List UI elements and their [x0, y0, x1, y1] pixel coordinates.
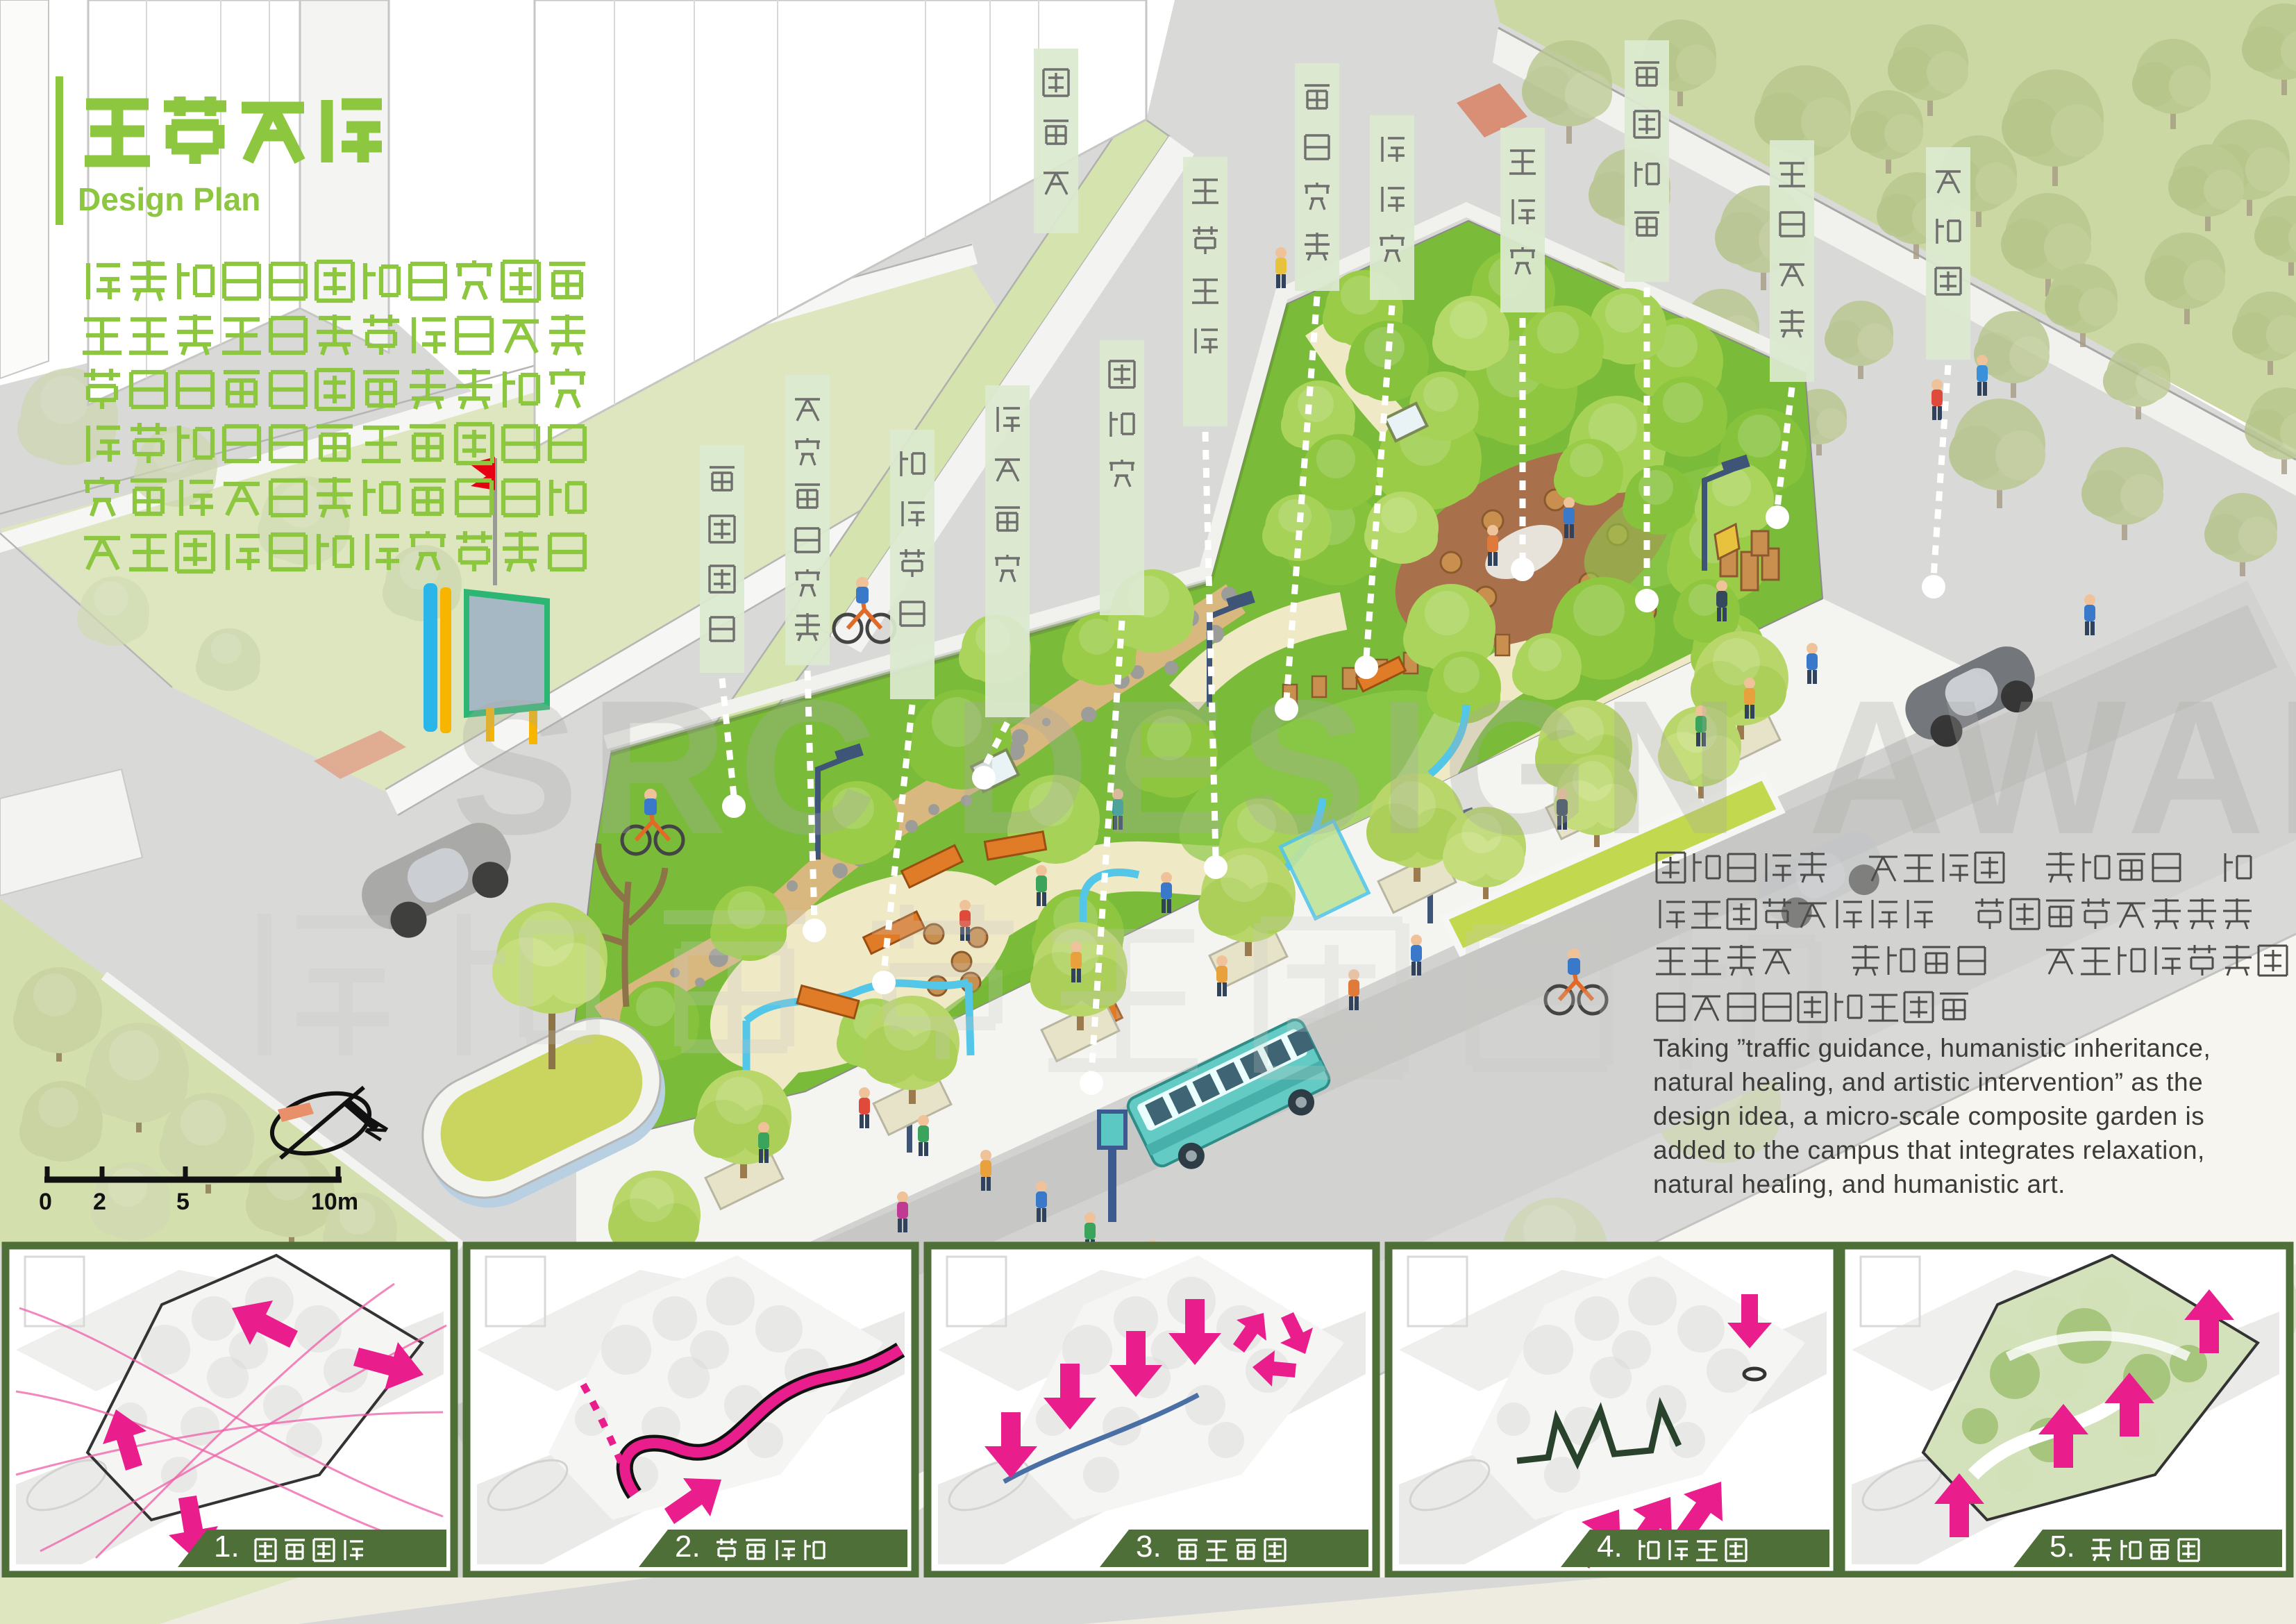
svg-text:added to the campus that integ: added to the campus that integrates rela… [1653, 1136, 2205, 1164]
svg-text:0: 0 [39, 1189, 52, 1215]
svg-text:natural healing, and artistic: natural healing, and artistic interventi… [1653, 1068, 2203, 1096]
svg-text:1.: 1. [214, 1530, 240, 1564]
svg-text:SRC DESIGN AWARD: SRC DESIGN AWARD [451, 661, 2296, 874]
svg-text:5.: 5. [2050, 1530, 2075, 1564]
svg-text:4.: 4. [1597, 1530, 1623, 1564]
svg-text:10m: 10m [311, 1189, 358, 1215]
svg-text:5: 5 [176, 1189, 190, 1215]
svg-text:3.: 3. [1136, 1530, 1162, 1564]
svg-text:Design Plan: Design Plan [78, 181, 260, 217]
svg-text:2.: 2. [675, 1530, 701, 1564]
svg-text:Taking ”traffic guidance, huma: Taking ”traffic guidance, humanistic inh… [1653, 1034, 2211, 1062]
svg-text:2: 2 [93, 1189, 106, 1215]
svg-text:design idea, a micro-scale com: design idea, a micro-scale composite gar… [1653, 1102, 2204, 1130]
svg-text:natural healing, and humanisti: natural healing, and humanistic art. [1653, 1170, 2065, 1198]
